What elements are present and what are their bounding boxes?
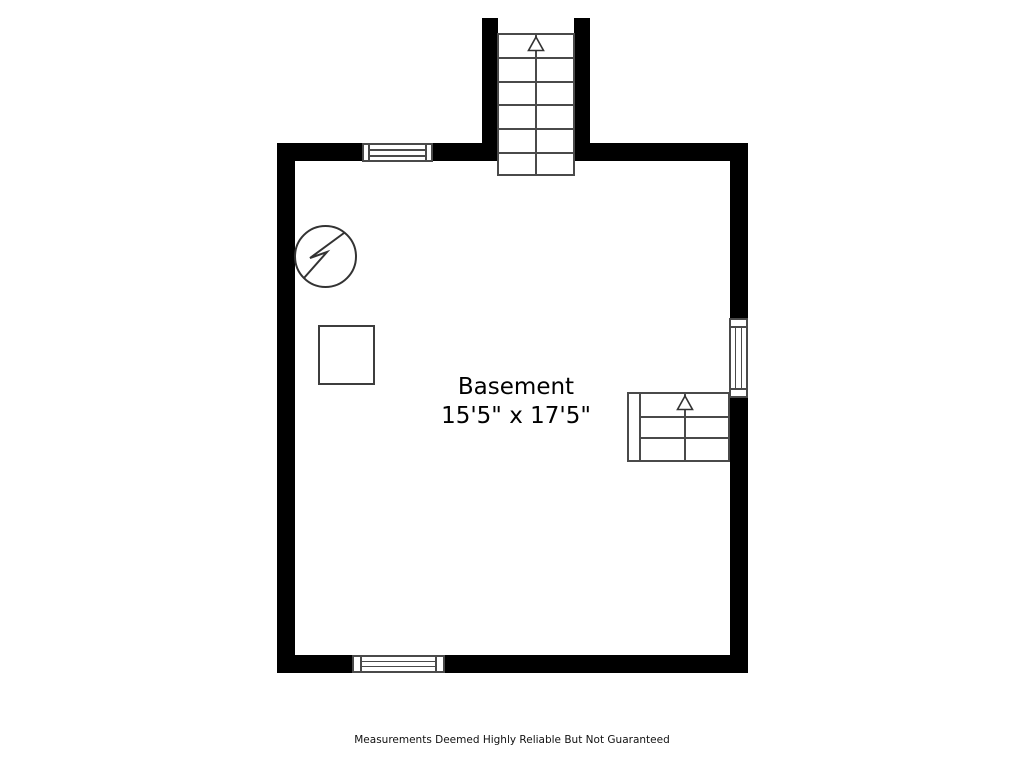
window-bottom	[352, 655, 445, 673]
window-cap-line	[731, 388, 746, 390]
stair-tread-line	[639, 437, 728, 439]
room-dimensions: 15'5" x 17'5"	[316, 403, 716, 429]
stairs-up-arrow-icon	[527, 36, 545, 52]
wall-top-right-segment	[590, 143, 748, 161]
window-pane-line	[360, 661, 437, 663]
electrical-panel-icon	[293, 224, 358, 289]
wall-left	[277, 143, 295, 673]
window-top	[362, 143, 433, 162]
window-cap-line	[368, 145, 370, 160]
room-label: Basement	[316, 374, 716, 400]
window-pane-line	[360, 666, 437, 668]
window-cap-line	[731, 326, 746, 328]
window-pane-line	[368, 149, 427, 151]
disclaimer-text: Measurements Deemed Highly Reliable But …	[0, 734, 1024, 746]
floorplan-canvas: Basement 15'5" x 17'5" Measurements Deem…	[0, 0, 1024, 768]
window-pane-line	[741, 326, 743, 390]
staircase-upper	[497, 33, 575, 176]
wall-right-upper-segment	[730, 143, 748, 318]
wall-right-lower-segment	[730, 398, 748, 673]
window-cap-line	[425, 145, 427, 160]
window-pane-line	[368, 155, 427, 157]
stair-divider-line	[535, 35, 537, 174]
wall-bottom	[277, 655, 748, 673]
window-cap-line	[435, 657, 437, 671]
stairwell-wall-left	[482, 18, 498, 161]
stairwell-wall-right	[574, 18, 590, 161]
window-pane-line	[735, 326, 737, 390]
window-right	[729, 318, 748, 398]
window-cap-line	[360, 657, 362, 671]
